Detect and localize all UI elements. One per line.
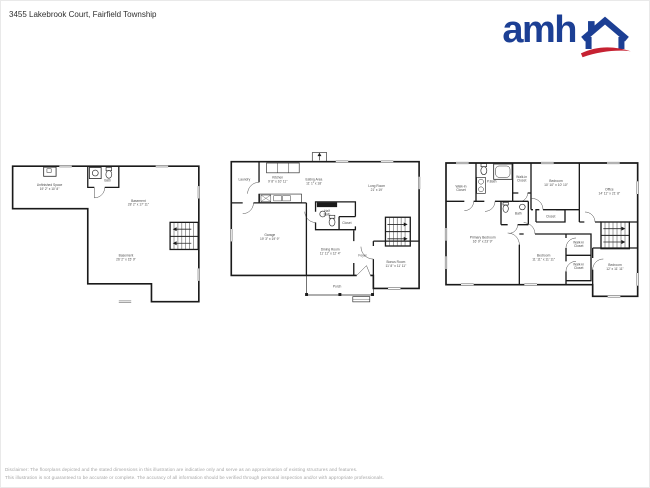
window-markers (59, 165, 200, 304)
room-label: Bath (104, 179, 111, 183)
room-label: Garage (264, 233, 275, 237)
room-dims: 11' 8" x 11' 11" (386, 264, 408, 268)
window-markers (230, 160, 421, 290)
room-label: Closet (546, 214, 556, 218)
toilet-icon (481, 164, 487, 175)
room-dims: 19' 3" x 19' 9" (260, 237, 280, 241)
room-label: Bath (515, 212, 522, 216)
room-label: Long Room (368, 184, 385, 188)
washer-icon (44, 167, 56, 176)
disclaimer-line-2: This illustration is not guaranteed to b… (5, 474, 384, 482)
footer-disclaimer: Disclaimer: The floorplans depicted and … (5, 466, 384, 482)
room-dims: 21' x 19' (371, 188, 383, 192)
porch (305, 275, 374, 301)
room-label: Bedroom (549, 179, 563, 183)
room-dims: 11' 11" x 11' 11" (532, 258, 556, 262)
amh-logo: amh (502, 14, 633, 60)
room-label: Bath (324, 213, 331, 217)
floorplan-second-floor: Walk-in Closet P.Bath Walk-in Closet Bed… (441, 148, 641, 318)
room-label: Bedroom (608, 263, 622, 267)
room-dims: 28' 2" x 17' 11" (128, 203, 150, 207)
room-label: Closet (574, 244, 584, 248)
room-label: Unfinished Space (37, 183, 63, 187)
room-dims: 11' 1" x 18' (306, 181, 322, 185)
stairs (170, 222, 198, 249)
logo-text: amh (502, 14, 576, 47)
bath-sink-icon (89, 167, 101, 178)
toilet-icon (106, 167, 112, 178)
room-label: Foyer (358, 253, 367, 257)
room-label: Basement (131, 199, 146, 203)
room-label: Closet (342, 221, 351, 225)
logo-house-icon (577, 14, 633, 60)
front-door (357, 266, 371, 277)
room-label: Closet (517, 179, 527, 183)
room-label: Closet (574, 266, 584, 270)
room-label: Bonus Room (387, 260, 406, 264)
stairs (601, 222, 629, 249)
room-label: P.Bath (487, 180, 497, 184)
window-markers (444, 161, 639, 298)
floorplan-main-floor: Laundry Kitchen 9' 8" x 10' 11" Eating A… (228, 148, 424, 315)
vanity-sinks-icon (477, 177, 486, 193)
room-dims: 19' 2" x 10' 8" (40, 187, 60, 191)
interior-walls (231, 162, 419, 276)
floorplan-basement: Unfinished Space 19' 2" x 10' 8" Bath Ba… (11, 158, 207, 315)
hall-bath-fixtures (503, 202, 525, 212)
room-dims: 16' 9" x 23' 9" (473, 240, 494, 244)
room-dims: 26' 2" x 15' 9" (116, 258, 136, 262)
room-dims: 10' 10" x 10' 10" (544, 183, 569, 187)
room-label: Bedroom (537, 254, 551, 258)
room-label: Dining Room (321, 248, 340, 252)
bathtub-icon (494, 164, 512, 179)
disclaimer-line-1: Disclaimer: The floorplans depicted and … (5, 466, 384, 474)
room-label: Primary Bedroom (470, 236, 496, 240)
floorplan-sheet: 3455 Lakebrook Court, Fairfield Township… (0, 0, 650, 488)
room-label: Laundry (238, 178, 250, 182)
room-label: Closet (456, 188, 466, 192)
entry-stoop (312, 153, 326, 162)
room-label: Kitchen (272, 176, 283, 180)
room-label: Basement (119, 254, 134, 258)
room-label: Office (605, 187, 614, 191)
room-dims: 14' 11" x 21' 8" (598, 191, 621, 195)
room-dims: 11' 11" x 12' 4" (320, 251, 342, 255)
room-label: Eating Area (306, 177, 323, 181)
room-label: Porch (333, 284, 342, 288)
room-dims: 12' x 11' 11" (606, 267, 624, 271)
door-swing (94, 187, 104, 197)
room-dims: 9' 8" x 10' 11" (268, 180, 288, 184)
page-title: 3455 Lakebrook Court, Fairfield Township (9, 10, 157, 19)
